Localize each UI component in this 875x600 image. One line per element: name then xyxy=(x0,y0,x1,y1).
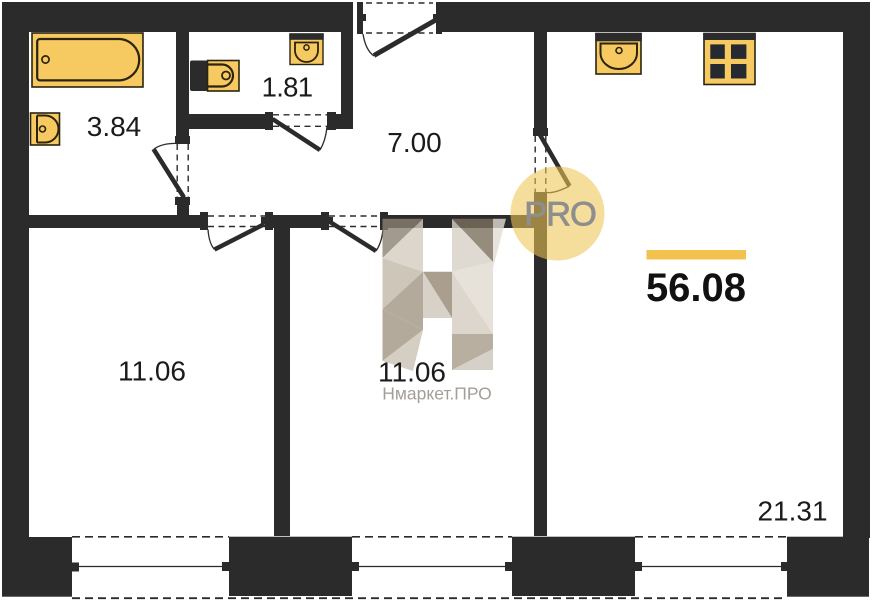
svg-text:3.84: 3.84 xyxy=(87,111,142,142)
svg-text:56.08: 56.08 xyxy=(646,266,746,310)
svg-text:21.31: 21.31 xyxy=(757,496,827,527)
svg-text:11.06: 11.06 xyxy=(118,356,186,387)
svg-text:7.00: 7.00 xyxy=(387,127,442,158)
svg-text:11.06: 11.06 xyxy=(378,357,446,388)
svg-text:PRO: PRO xyxy=(524,196,596,234)
svg-text:1.81: 1.81 xyxy=(262,72,313,103)
